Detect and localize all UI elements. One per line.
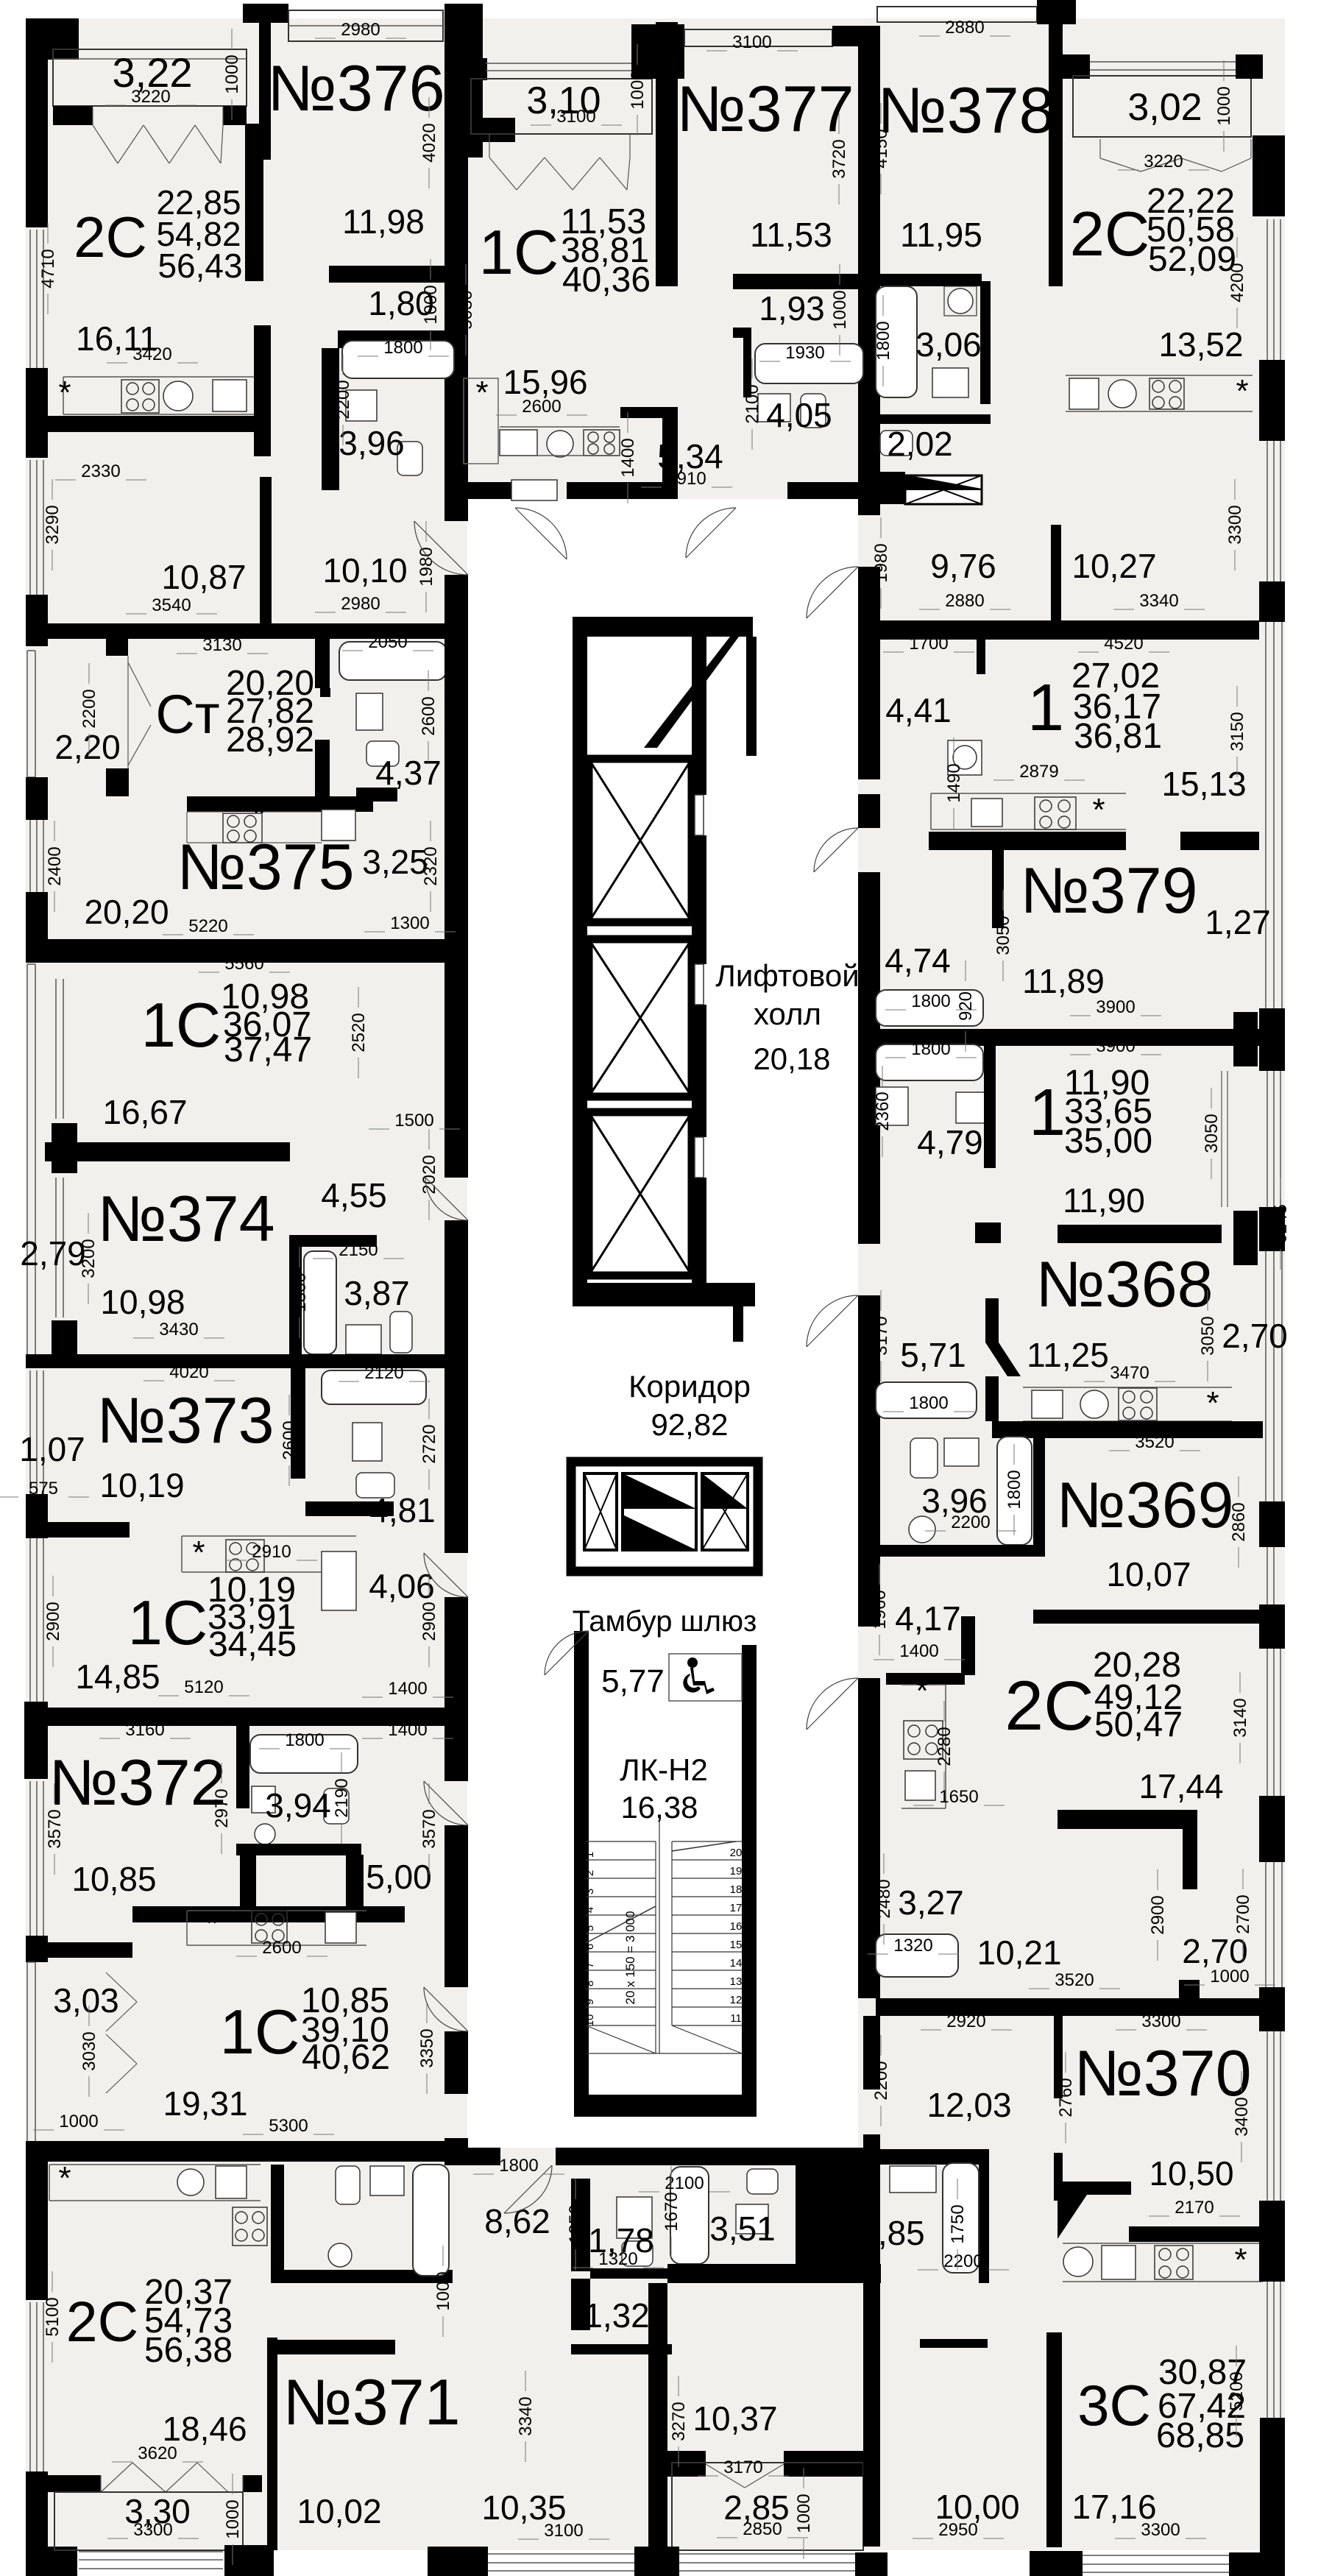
svg-text:1: 1 bbox=[1027, 671, 1064, 745]
svg-text:5560: 5560 bbox=[224, 954, 263, 974]
svg-text:12: 12 bbox=[730, 1994, 743, 2006]
svg-text:2850: 2850 bbox=[743, 2519, 782, 2539]
svg-text:№370: №370 bbox=[1074, 2037, 1251, 2109]
svg-text:20 x 150 = 3 000: 20 x 150 = 3 000 bbox=[623, 1911, 637, 2004]
svg-text:10,02: 10,02 bbox=[297, 2492, 381, 2530]
svg-text:20,18: 20,18 bbox=[753, 1041, 830, 1076]
svg-text:1800: 1800 bbox=[911, 1039, 950, 1059]
svg-text:*: * bbox=[1234, 2242, 1247, 2278]
svg-text:3100: 3100 bbox=[556, 107, 595, 127]
svg-text:5220: 5220 bbox=[188, 916, 227, 936]
svg-text:2,02: 2,02 bbox=[887, 425, 953, 463]
svg-text:11,95: 11,95 bbox=[900, 216, 982, 254]
svg-text:5300: 5300 bbox=[269, 2116, 308, 2136]
svg-text:15: 15 bbox=[730, 1939, 743, 1951]
svg-text:№378: №378 bbox=[877, 74, 1055, 146]
svg-text:1750: 1750 bbox=[948, 2204, 968, 2243]
svg-text:50,47: 50,47 bbox=[1094, 1705, 1183, 1744]
svg-text:2100: 2100 bbox=[743, 384, 762, 423]
svg-text:4: 4 bbox=[584, 1907, 596, 1913]
svg-text:1,93: 1,93 bbox=[759, 289, 825, 328]
svg-text:4,17: 4,17 bbox=[895, 1599, 961, 1638]
svg-text:10,27: 10,27 bbox=[1071, 547, 1156, 585]
svg-text:4,05: 4,05 bbox=[766, 396, 832, 434]
svg-text:2360: 2360 bbox=[873, 1091, 893, 1130]
svg-text:1,27: 1,27 bbox=[1205, 903, 1271, 941]
svg-text:2200: 2200 bbox=[79, 689, 99, 728]
svg-text:*: * bbox=[58, 375, 71, 411]
svg-text:3900: 3900 bbox=[1096, 1036, 1135, 1056]
svg-text:4520: 4520 bbox=[1104, 634, 1143, 654]
svg-text:13: 13 bbox=[730, 1975, 743, 1988]
svg-text:3300: 3300 bbox=[133, 2520, 172, 2540]
svg-text:4,37: 4,37 bbox=[375, 754, 442, 792]
svg-text:3130: 3130 bbox=[202, 635, 241, 655]
svg-text:2120: 2120 bbox=[364, 1363, 403, 1383]
svg-text:*: * bbox=[475, 375, 488, 411]
svg-text:Лифтовой: Лифтовой bbox=[715, 958, 859, 993]
svg-text:3100: 3100 bbox=[732, 32, 771, 52]
svg-text:3520: 3520 bbox=[1055, 1970, 1094, 1990]
svg-text:Ст: Ст bbox=[155, 684, 219, 745]
svg-text:3050: 3050 bbox=[993, 916, 1013, 955]
svg-text:1980: 1980 bbox=[871, 543, 891, 582]
svg-text:10,50: 10,50 bbox=[1149, 2154, 1233, 2193]
svg-text:3,51: 3,51 bbox=[709, 2209, 776, 2248]
svg-text:1000: 1000 bbox=[223, 2499, 243, 2538]
svg-text:1С: 1С bbox=[141, 991, 222, 1061]
svg-text:920: 920 bbox=[956, 991, 976, 1021]
svg-text:1: 1 bbox=[1029, 1076, 1066, 1150]
svg-text:5120: 5120 bbox=[184, 1677, 223, 1697]
svg-text:10,37: 10,37 bbox=[692, 2399, 777, 2438]
svg-text:2600: 2600 bbox=[280, 1420, 300, 1459]
svg-text:10,10: 10,10 bbox=[322, 551, 407, 590]
svg-text:19: 19 bbox=[730, 1865, 743, 1878]
svg-text:11,53: 11,53 bbox=[750, 216, 832, 254]
svg-text:2970: 2970 bbox=[212, 1788, 232, 1827]
svg-text:№372: №372 bbox=[49, 1746, 226, 1819]
svg-text:2700: 2700 bbox=[1233, 1894, 1253, 1933]
svg-text:1930: 1930 bbox=[785, 343, 824, 363]
svg-text:№376: №376 bbox=[267, 52, 444, 124]
svg-text:2190: 2190 bbox=[332, 1778, 352, 1817]
svg-text:2280: 2280 bbox=[935, 1727, 954, 1766]
svg-text:2170: 2170 bbox=[1175, 2198, 1214, 2218]
svg-text:2860: 2860 bbox=[1229, 1502, 1249, 1541]
svg-text:10: 10 bbox=[584, 2014, 596, 2027]
svg-text:1000: 1000 bbox=[222, 54, 242, 93]
svg-text:1300: 1300 bbox=[390, 913, 429, 933]
svg-text:3050: 3050 bbox=[1202, 1114, 1222, 1153]
svg-text:3,06: 3,06 bbox=[915, 325, 982, 364]
svg-text:6: 6 bbox=[584, 1944, 596, 1950]
svg-text:2600: 2600 bbox=[522, 397, 561, 417]
svg-text:2С: 2С bbox=[74, 205, 147, 269]
svg-text:1800: 1800 bbox=[874, 321, 893, 360]
svg-text:2200: 2200 bbox=[333, 380, 353, 419]
svg-text:1490: 1490 bbox=[944, 763, 964, 802]
svg-text:*: * bbox=[1206, 1385, 1219, 1421]
svg-text:1000: 1000 bbox=[1214, 86, 1234, 125]
svg-text:52,09: 52,09 bbox=[1148, 240, 1236, 279]
svg-text:3420: 3420 bbox=[132, 344, 171, 364]
svg-text:2600: 2600 bbox=[419, 696, 439, 735]
svg-text:3,02: 3,02 bbox=[1127, 86, 1202, 129]
svg-text:2480: 2480 bbox=[874, 1879, 894, 1918]
svg-text:4020: 4020 bbox=[419, 123, 439, 162]
svg-text:3: 3 bbox=[584, 1889, 596, 1894]
svg-text:1960: 1960 bbox=[870, 1590, 890, 1629]
svg-text:3350: 3350 bbox=[417, 2028, 437, 2067]
svg-text:15,13: 15,13 bbox=[1161, 765, 1246, 803]
svg-text:9,76: 9,76 bbox=[930, 547, 996, 585]
svg-text:3570: 3570 bbox=[419, 1809, 439, 1848]
svg-text:1320: 1320 bbox=[893, 1936, 932, 1956]
svg-text:2050: 2050 bbox=[368, 632, 407, 652]
svg-text:1,32: 1,32 bbox=[584, 2296, 650, 2335]
svg-text:1400: 1400 bbox=[388, 1679, 427, 1699]
svg-text:16: 16 bbox=[730, 1920, 743, 1933]
svg-text:1500: 1500 bbox=[394, 1111, 433, 1130]
svg-text:3150: 3150 bbox=[1228, 712, 1247, 751]
svg-text:2950: 2950 bbox=[938, 2520, 977, 2540]
svg-text:2900: 2900 bbox=[1148, 1895, 1168, 1934]
svg-text:2880: 2880 bbox=[945, 591, 984, 611]
svg-text:7: 7 bbox=[584, 1962, 596, 1968]
svg-text:17,44: 17,44 bbox=[1138, 1767, 1223, 1805]
svg-text:56,43: 56,43 bbox=[157, 247, 242, 285]
svg-text:ЛК-Н2: ЛК-Н2 bbox=[620, 1752, 708, 1787]
svg-text:*: * bbox=[58, 2160, 71, 2196]
svg-text:1320: 1320 bbox=[598, 2249, 637, 2269]
svg-text:20,20: 20,20 bbox=[84, 893, 169, 931]
svg-text:13,52: 13,52 bbox=[1158, 325, 1243, 364]
svg-text:1000: 1000 bbox=[1210, 1967, 1249, 1986]
svg-text:№369: №369 bbox=[1056, 1468, 1233, 1541]
svg-text:4200: 4200 bbox=[1228, 263, 1247, 302]
svg-text:18,46: 18,46 bbox=[162, 2410, 247, 2448]
svg-text:10,19: 10,19 bbox=[99, 1466, 184, 1504]
svg-text:1800: 1800 bbox=[1005, 1470, 1024, 1509]
svg-text:3,03: 3,03 bbox=[53, 1981, 119, 2020]
svg-text:12,03: 12,03 bbox=[927, 2086, 1011, 2124]
svg-text:4020: 4020 bbox=[169, 1362, 208, 1382]
svg-text:1: 1 bbox=[584, 1852, 596, 1858]
svg-text:8: 8 bbox=[584, 1981, 596, 1986]
svg-text:40,62: 40,62 bbox=[302, 2038, 390, 2077]
svg-text:*: * bbox=[1236, 373, 1248, 409]
svg-text:*: * bbox=[192, 1535, 205, 1571]
svg-text:11,89: 11,89 bbox=[1022, 962, 1105, 1000]
svg-text:1000: 1000 bbox=[628, 70, 648, 109]
svg-text:1800: 1800 bbox=[285, 1730, 324, 1750]
svg-text:*: * bbox=[1092, 792, 1105, 828]
svg-text:3400: 3400 bbox=[1232, 2097, 1252, 2136]
svg-text:5100: 5100 bbox=[43, 2297, 63, 2336]
svg-text:3170: 3170 bbox=[871, 1316, 891, 1355]
svg-text:3,85: 3,85 bbox=[859, 2214, 925, 2252]
svg-text:№373: №373 bbox=[96, 1384, 274, 1457]
svg-text:1800: 1800 bbox=[290, 1273, 310, 1312]
svg-text:2920: 2920 bbox=[946, 2011, 985, 2031]
svg-text:3050: 3050 bbox=[1198, 1316, 1218, 1355]
svg-text:16,67: 16,67 bbox=[102, 1093, 187, 1131]
svg-text:3430: 3430 bbox=[159, 1320, 198, 1340]
svg-text:10,21: 10,21 bbox=[977, 1933, 1061, 1972]
svg-text:№368: №368 bbox=[1035, 1248, 1213, 1320]
svg-text:3470: 3470 bbox=[1110, 1363, 1149, 1383]
svg-text:92,82: 92,82 bbox=[651, 1407, 728, 1442]
svg-text:№379: №379 bbox=[1020, 854, 1197, 927]
svg-text:холл: холл bbox=[754, 997, 821, 1031]
svg-text:3720: 3720 bbox=[829, 139, 849, 178]
svg-text:1800: 1800 bbox=[911, 991, 950, 1011]
svg-text:4,81: 4,81 bbox=[369, 1491, 436, 1529]
svg-text:2400: 2400 bbox=[45, 846, 65, 885]
svg-text:3,94: 3,94 bbox=[265, 1786, 331, 1825]
svg-text:1910: 1910 bbox=[667, 469, 706, 489]
svg-text:5,77: 5,77 bbox=[601, 1663, 665, 1699]
svg-text:3300: 3300 bbox=[1141, 2011, 1180, 2031]
svg-text:1350: 1350 bbox=[566, 2204, 586, 2243]
svg-text:1670: 1670 bbox=[662, 2192, 681, 2231]
svg-text:11,98: 11,98 bbox=[342, 202, 425, 241]
svg-text:2900: 2900 bbox=[43, 1602, 63, 1641]
svg-text:5: 5 bbox=[584, 1925, 596, 1931]
svg-text:3620: 3620 bbox=[138, 2444, 177, 2463]
svg-text:3520: 3520 bbox=[1135, 1432, 1174, 1452]
svg-text:2С: 2С bbox=[66, 2290, 138, 2354]
svg-text:4,06: 4,06 bbox=[369, 1567, 435, 1605]
svg-text:37,47: 37,47 bbox=[224, 1030, 312, 1069]
svg-text:1000: 1000 bbox=[433, 2271, 453, 2310]
svg-text:5030: 5030 bbox=[456, 290, 476, 329]
svg-text:18: 18 bbox=[730, 1883, 743, 1896]
svg-text:*: * bbox=[252, 796, 265, 832]
svg-text:3,25: 3,25 bbox=[362, 843, 428, 881]
svg-text:10,07: 10,07 bbox=[1106, 1555, 1191, 1593]
svg-text:2: 2 bbox=[584, 1870, 596, 1876]
svg-text:*: * bbox=[915, 1673, 928, 1709]
svg-text:2760: 2760 bbox=[1056, 2078, 1076, 2117]
svg-text:1700: 1700 bbox=[909, 634, 948, 654]
svg-text:2910: 2910 bbox=[252, 1542, 291, 1562]
svg-text:14,85: 14,85 bbox=[75, 1657, 160, 1696]
svg-text:2720: 2720 bbox=[419, 1424, 439, 1463]
svg-text:1С: 1С bbox=[128, 1588, 208, 1658]
svg-text:9: 9 bbox=[584, 1999, 596, 2005]
svg-text:3290: 3290 bbox=[43, 505, 63, 544]
svg-text:2200: 2200 bbox=[951, 1512, 990, 1532]
svg-text:2520: 2520 bbox=[349, 1013, 369, 1052]
svg-text:4,55: 4,55 bbox=[321, 1176, 387, 1214]
svg-text:16,38: 16,38 bbox=[620, 1790, 698, 1825]
svg-text:№377: №377 bbox=[676, 72, 854, 145]
svg-text:15,96: 15,96 bbox=[503, 363, 587, 401]
svg-text:Коридор: Коридор bbox=[628, 1369, 751, 1404]
svg-text:2100: 2100 bbox=[665, 2173, 704, 2193]
svg-text:1С: 1С bbox=[479, 218, 559, 288]
svg-text:2200: 2200 bbox=[871, 2061, 891, 2100]
svg-text:1980: 1980 bbox=[417, 547, 436, 586]
svg-text:3220: 3220 bbox=[1144, 152, 1183, 171]
svg-text:*: * bbox=[205, 1906, 218, 1942]
svg-text:17: 17 bbox=[730, 1902, 743, 1914]
svg-text:3220: 3220 bbox=[131, 87, 170, 107]
svg-text:2600: 2600 bbox=[262, 1938, 301, 1958]
svg-text:36,81: 36,81 bbox=[1074, 717, 1162, 756]
svg-text:3900: 3900 bbox=[1096, 997, 1135, 1017]
svg-text:1000: 1000 bbox=[59, 2112, 98, 2131]
svg-text:2330: 2330 bbox=[81, 461, 120, 481]
svg-text:№371: №371 bbox=[283, 2366, 460, 2438]
svg-text:14: 14 bbox=[730, 1957, 743, 1970]
svg-text:№374: №374 bbox=[97, 1182, 274, 1255]
svg-text:1650: 1650 bbox=[939, 1787, 978, 1807]
svg-text:3570: 3570 bbox=[45, 1809, 65, 1848]
svg-text:№375: №375 bbox=[177, 830, 354, 903]
svg-text:3,27: 3,27 bbox=[898, 1883, 964, 1922]
svg-text:3340: 3340 bbox=[516, 2396, 536, 2435]
svg-text:1,07: 1,07 bbox=[19, 1430, 85, 1468]
svg-text:3,96: 3,96 bbox=[339, 424, 405, 462]
svg-text:2200: 2200 bbox=[943, 2251, 982, 2271]
svg-text:10,87: 10,87 bbox=[161, 558, 246, 596]
svg-text:1400: 1400 bbox=[618, 438, 638, 477]
svg-text:575: 575 bbox=[29, 1479, 58, 1498]
svg-text:20: 20 bbox=[730, 1847, 743, 1859]
svg-text:2150: 2150 bbox=[339, 1240, 378, 1260]
svg-text:1С: 1С bbox=[220, 1998, 300, 2067]
svg-text:4,79: 4,79 bbox=[917, 1123, 983, 1161]
svg-text:1000: 1000 bbox=[830, 290, 850, 329]
svg-text:3300: 3300 bbox=[1141, 2520, 1180, 2540]
svg-text:2880: 2880 bbox=[945, 18, 984, 38]
svg-text:3170: 3170 bbox=[723, 2458, 762, 2477]
svg-text:1000: 1000 bbox=[421, 285, 441, 324]
svg-text:4,41: 4,41 bbox=[885, 691, 952, 729]
svg-text:5,00: 5,00 bbox=[366, 1858, 432, 1896]
svg-text:34,45: 34,45 bbox=[208, 1625, 297, 1664]
svg-text:3160: 3160 bbox=[125, 1720, 164, 1740]
svg-text:4,74: 4,74 bbox=[885, 941, 951, 980]
svg-text:56,38: 56,38 bbox=[144, 2331, 233, 2370]
svg-text:1000: 1000 bbox=[794, 2494, 814, 2533]
svg-text:Тамбур шлюз: Тамбур шлюз bbox=[573, 1605, 757, 1638]
svg-text:8,62: 8,62 bbox=[484, 2202, 550, 2240]
svg-text:2320: 2320 bbox=[421, 846, 441, 885]
svg-text:35,00: 35,00 bbox=[1064, 1122, 1152, 1161]
svg-text:19,31: 19,31 bbox=[163, 2084, 247, 2123]
svg-text:4150: 4150 bbox=[871, 129, 891, 168]
svg-text:2879: 2879 bbox=[1019, 762, 1058, 782]
svg-text:2,70: 2,70 bbox=[1182, 1932, 1248, 1970]
svg-text:5200: 5200 bbox=[1227, 2371, 1247, 2410]
svg-text:2980: 2980 bbox=[341, 594, 380, 614]
svg-text:1800: 1800 bbox=[383, 338, 422, 358]
svg-text:1800: 1800 bbox=[909, 1393, 948, 1413]
svg-text:68,85: 68,85 bbox=[1156, 2416, 1244, 2455]
svg-text:11,25: 11,25 bbox=[1027, 1336, 1109, 1374]
svg-text:5,71: 5,71 bbox=[900, 1336, 966, 1374]
svg-text:3300: 3300 bbox=[1225, 505, 1245, 544]
svg-text:1400: 1400 bbox=[899, 1641, 938, 1661]
svg-text:28,92: 28,92 bbox=[226, 721, 314, 760]
svg-text:1800: 1800 bbox=[499, 2156, 538, 2176]
svg-text:1400: 1400 bbox=[388, 1720, 427, 1740]
svg-text:4710: 4710 bbox=[38, 249, 58, 288]
svg-text:2С: 2С bbox=[1005, 1667, 1094, 1745]
svg-text:3,87: 3,87 bbox=[344, 1274, 410, 1312]
svg-text:2900: 2900 bbox=[419, 1602, 439, 1641]
svg-text:2980: 2980 bbox=[341, 20, 380, 40]
svg-text:10,98: 10,98 bbox=[100, 1283, 185, 1321]
svg-text:3С: 3С bbox=[1077, 2373, 1151, 2438]
svg-text:3100: 3100 bbox=[544, 2521, 583, 2541]
svg-text:3540: 3540 bbox=[152, 595, 191, 615]
svg-text:3030: 3030 bbox=[79, 2031, 99, 2070]
svg-text:11: 11 bbox=[730, 2012, 742, 2025]
svg-text:3340: 3340 bbox=[1139, 591, 1178, 611]
svg-text:3140: 3140 bbox=[1230, 1698, 1250, 1737]
svg-text:10,85: 10,85 bbox=[71, 1860, 156, 1898]
svg-text:2С: 2С bbox=[1070, 199, 1150, 269]
svg-text:6245: 6245 bbox=[1271, 1204, 1291, 1243]
svg-text:11,90: 11,90 bbox=[1063, 1181, 1145, 1220]
svg-text:2,20: 2,20 bbox=[54, 728, 121, 766]
svg-text:3200: 3200 bbox=[79, 1239, 99, 1278]
svg-text:3270: 3270 bbox=[669, 2402, 689, 2441]
svg-text:40,36: 40,36 bbox=[562, 261, 651, 300]
svg-text:2,79: 2,79 bbox=[20, 1234, 86, 1273]
svg-text:2,70: 2,70 bbox=[1222, 1317, 1288, 1355]
